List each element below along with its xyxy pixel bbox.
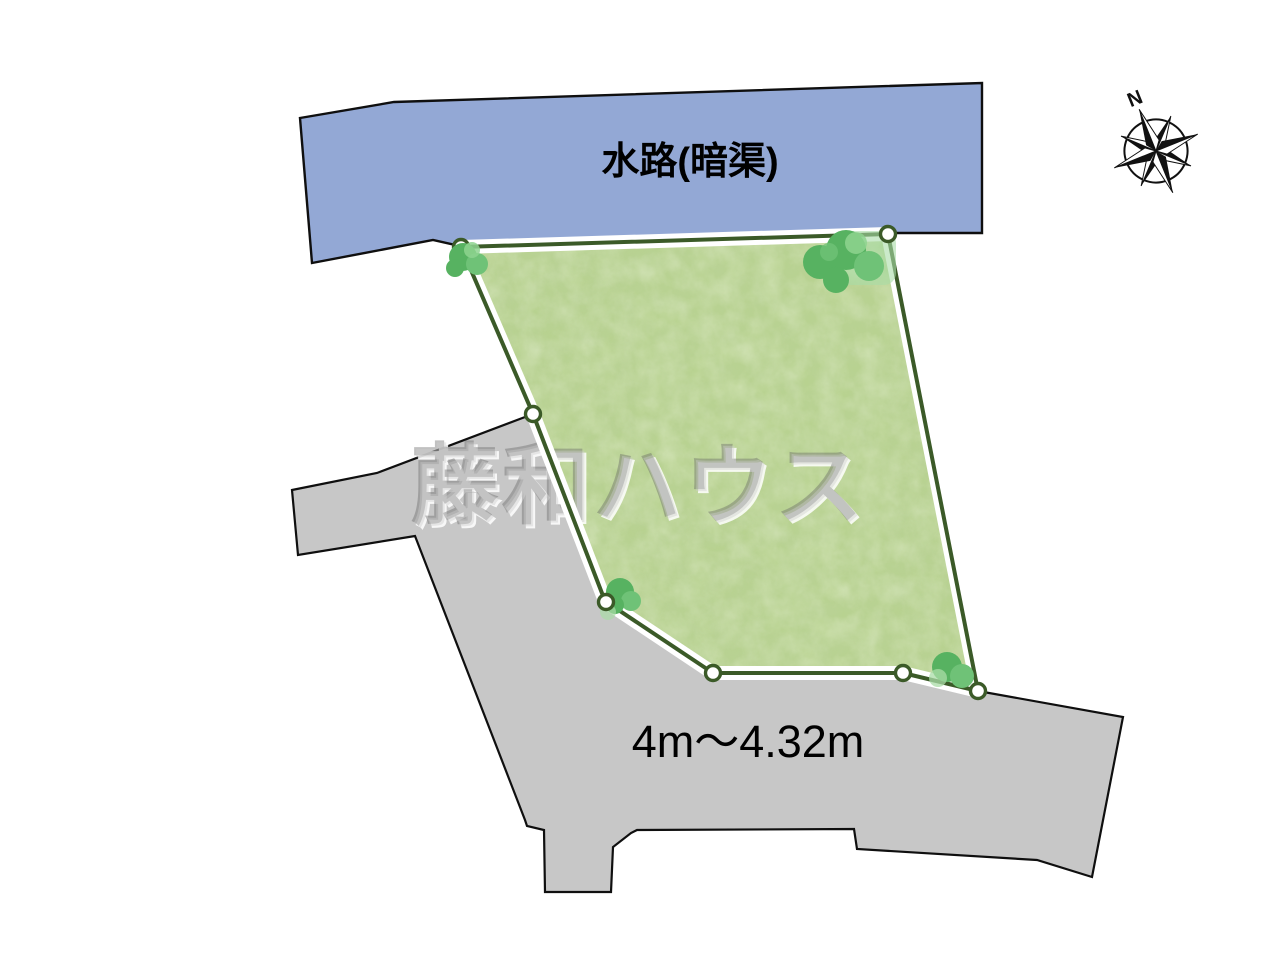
watermark: 藤和ハウス 藤和ハウス 藤和ハウス (410, 436, 869, 539)
watermark-text: 藤和ハウス (412, 438, 867, 537)
vertex-marker (881, 227, 896, 242)
vertex-marker (971, 684, 986, 699)
vertex-marker (526, 407, 541, 422)
waterway-label: 水路(暗渠) (601, 141, 778, 183)
vertex-marker (896, 666, 911, 681)
vertex-marker (706, 666, 721, 681)
compass-rose-icon: N (1089, 72, 1214, 210)
site-plan-drawing: 水路(暗渠) 4m～4.32m 藤和ハウス 藤和ハウス 藤和ハウス (0, 0, 1280, 960)
road-width-label: 4m～4.32m (632, 716, 865, 767)
site-plan-page: 水路(暗渠) 4m～4.32m 藤和ハウス 藤和ハウス 藤和ハウス (0, 0, 1280, 960)
compass-north-label: N (1124, 86, 1146, 112)
vertex-marker (599, 595, 614, 610)
